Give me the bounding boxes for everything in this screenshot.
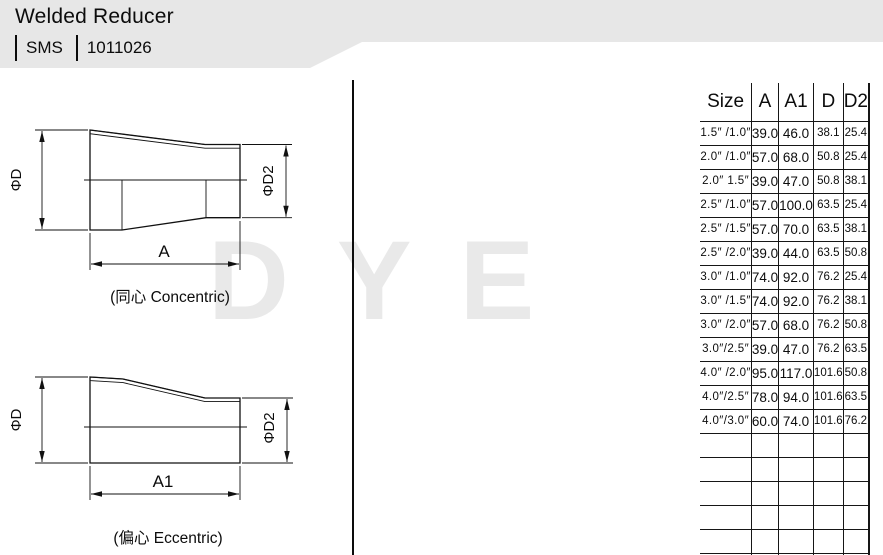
- d-cell: 50.8: [813, 169, 843, 193]
- d2-cell: 25.4: [843, 145, 868, 169]
- empty-table-row: [700, 481, 870, 505]
- d-cell: 101.6: [813, 409, 843, 433]
- a-cell: 57.0: [751, 217, 778, 241]
- a-cell: 39.0: [751, 241, 778, 265]
- table-row: 4.0″ /2.0″95.0117.0101.650.8: [700, 361, 870, 385]
- empty-table-row: [700, 505, 870, 529]
- d-cell: 50.8: [813, 145, 843, 169]
- edge-cell: [870, 313, 871, 337]
- concentric-d-label: ΦD: [8, 168, 25, 191]
- edge-cell: [870, 385, 871, 409]
- a1-cell: 46.0: [779, 121, 814, 145]
- table-row: 2.0″ 1.5″39.047.050.838.1: [700, 169, 870, 193]
- edge-cell: [870, 217, 871, 241]
- edge-cell: [870, 145, 871, 169]
- col-header-a1: A1: [779, 83, 814, 121]
- size-cell: 3.0″ /1.0″: [700, 265, 751, 289]
- size-cell: 3.0″ /2.0″: [700, 313, 751, 337]
- eccentric-caption: (偏心 Eccentric): [113, 529, 222, 547]
- size-cell: 2.5″ /1.5″: [700, 217, 751, 241]
- d-cell: 63.5: [813, 193, 843, 217]
- empty-table-row: [700, 457, 870, 481]
- concentric-d2-label: ΦD2: [260, 165, 277, 196]
- d2-cell: 50.8: [843, 361, 868, 385]
- edge-cell: [870, 337, 871, 361]
- d-cell: 76.2: [813, 313, 843, 337]
- d-cell: 101.6: [813, 361, 843, 385]
- d-cell: 101.6: [813, 385, 843, 409]
- table-row: 3.0″ /2.0″57.068.076.250.8: [700, 313, 870, 337]
- a-cell: 74.0: [751, 289, 778, 313]
- table-row: 3.0″ /1.0″74.092.076.225.4: [700, 265, 870, 289]
- table-row: 3.0″ /1.5″74.092.076.238.1: [700, 289, 870, 313]
- d2-cell: 63.5: [843, 337, 868, 361]
- size-cell: 4.0″/2.5″: [700, 385, 751, 409]
- d-cell: 76.2: [813, 289, 843, 313]
- concentric-d-extension-lines: [35, 130, 88, 230]
- a-cell: 57.0: [751, 313, 778, 337]
- eccentric-d2-label: ΦD2: [261, 412, 278, 443]
- d2-cell: 25.4: [843, 265, 868, 289]
- size-cell: 2.0″ /1.0″: [700, 145, 751, 169]
- concentric-internal-lines: [122, 180, 206, 230]
- d-cell: 63.5: [813, 241, 843, 265]
- a-cell: 39.0: [751, 121, 778, 145]
- edge-cell: [870, 361, 871, 385]
- catalog-page: Welded Reducer SMS 1011026 DYE: [0, 0, 883, 555]
- d2-cell: 38.1: [843, 169, 868, 193]
- d-cell: 76.2: [813, 337, 843, 361]
- empty-table-row: [700, 433, 870, 457]
- a-cell: 39.0: [751, 169, 778, 193]
- eccentric-body-outline: [90, 377, 240, 463]
- a1-cell: 44.0: [779, 241, 814, 265]
- concentric-a-label: A: [158, 242, 170, 261]
- edge-cell: [870, 289, 871, 313]
- eccentric-d-label: ΦD: [8, 408, 25, 431]
- table-row: 4.0″/2.5″78.094.0101.663.5: [700, 385, 870, 409]
- a-cell: 57.0: [751, 193, 778, 217]
- edge-cell: [870, 409, 871, 433]
- a-cell: 78.0: [751, 385, 778, 409]
- d2-cell: 38.1: [843, 217, 868, 241]
- a-cell: 74.0: [751, 265, 778, 289]
- d2-cell: 63.5: [843, 385, 868, 409]
- col-header-edge: [870, 83, 871, 121]
- a-cell: 39.0: [751, 337, 778, 361]
- a-cell: 60.0: [751, 409, 778, 433]
- d2-cell: 50.8: [843, 313, 868, 337]
- a1-cell: 68.0: [779, 145, 814, 169]
- size-cell: 4.0″ /2.0″: [700, 361, 751, 385]
- table-row: 2.5″ /2.0″39.044.063.550.8: [700, 241, 870, 265]
- col-header-d2: D2: [843, 83, 868, 121]
- eccentric-d-extension-lines: [35, 377, 88, 463]
- table-row: 2.0″ /1.0″57.068.050.825.4: [700, 145, 870, 169]
- d-cell: 38.1: [813, 121, 843, 145]
- d2-cell: 25.4: [843, 121, 868, 145]
- d2-cell: 50.8: [843, 241, 868, 265]
- table-row: 2.5″ /1.0″57.0100.063.525.4: [700, 193, 870, 217]
- a1-cell: 94.0: [779, 385, 814, 409]
- edge-cell: [870, 193, 871, 217]
- col-header-a: A: [751, 83, 778, 121]
- concentric-drawing: ΦD ΦD2 A (同心 Concentric): [8, 130, 292, 306]
- table-row: 3.0″/2.5″39.047.076.263.5: [700, 337, 870, 361]
- concentric-caption: (同心 Concentric): [110, 288, 230, 306]
- a-cell: 57.0: [751, 145, 778, 169]
- size-cell: 2.5″ /2.0″: [700, 241, 751, 265]
- d2-cell: 38.1: [843, 289, 868, 313]
- a1-cell: 74.0: [779, 409, 814, 433]
- empty-table-row: [700, 529, 870, 553]
- table-header-row: Size A A1 D D2: [700, 83, 870, 121]
- edge-cell: [870, 169, 871, 193]
- size-cell: 1.5″ /1.0″: [700, 121, 751, 145]
- eccentric-a1-label: A1: [153, 472, 174, 491]
- table-row: 1.5″ /1.0″39.046.038.125.4: [700, 121, 870, 145]
- spec-table-wrap: Size A A1 D D2 1.5″ /1.0″39.046.038.125.…: [352, 80, 883, 555]
- d-cell: 76.2: [813, 265, 843, 289]
- size-cell: 3.0″/2.5″: [700, 337, 751, 361]
- size-cell: 3.0″ /1.5″: [700, 289, 751, 313]
- size-cell: 2.0″ 1.5″: [700, 169, 751, 193]
- a-cell: 95.0: [751, 361, 778, 385]
- size-cell: 2.5″ /1.0″: [700, 193, 751, 217]
- d2-cell: 76.2: [843, 409, 868, 433]
- a1-cell: 117.0: [779, 361, 814, 385]
- a1-cell: 100.0: [779, 193, 814, 217]
- col-header-size: Size: [700, 83, 751, 121]
- a1-cell: 47.0: [779, 169, 814, 193]
- a1-cell: 70.0: [779, 217, 814, 241]
- d2-cell: 25.4: [843, 193, 868, 217]
- table-row: 4.0″/3.0″60.074.0101.676.2: [700, 409, 870, 433]
- a1-cell: 68.0: [779, 313, 814, 337]
- size-cell: 4.0″/3.0″: [700, 409, 751, 433]
- col-header-d: D: [813, 83, 843, 121]
- table-row: 2.5″ /1.5″57.070.063.538.1: [700, 217, 870, 241]
- edge-cell: [870, 265, 871, 289]
- d-cell: 63.5: [813, 217, 843, 241]
- a1-cell: 47.0: [779, 337, 814, 361]
- spec-table: Size A A1 D D2 1.5″ /1.0″39.046.038.125.…: [352, 80, 883, 555]
- a1-cell: 92.0: [779, 289, 814, 313]
- eccentric-drawing: ΦD ΦD2 A1 (偏心 Eccentric): [8, 377, 293, 547]
- a1-cell: 92.0: [779, 265, 814, 289]
- edge-cell: [870, 241, 871, 265]
- edge-cell: [870, 121, 871, 145]
